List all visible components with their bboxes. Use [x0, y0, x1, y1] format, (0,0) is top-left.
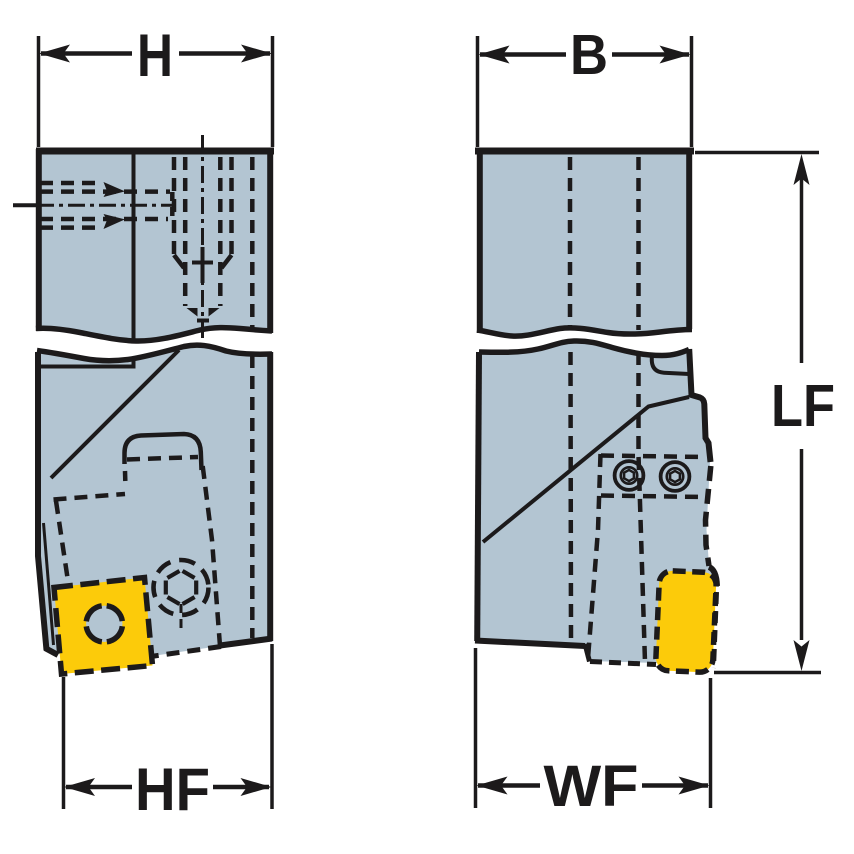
svg-text:H: H [137, 22, 173, 89]
svg-text:HF: HF [135, 756, 210, 823]
svg-text:B: B [570, 23, 608, 87]
svg-text:LF: LF [771, 373, 835, 439]
svg-text:WF: WF [544, 754, 639, 819]
